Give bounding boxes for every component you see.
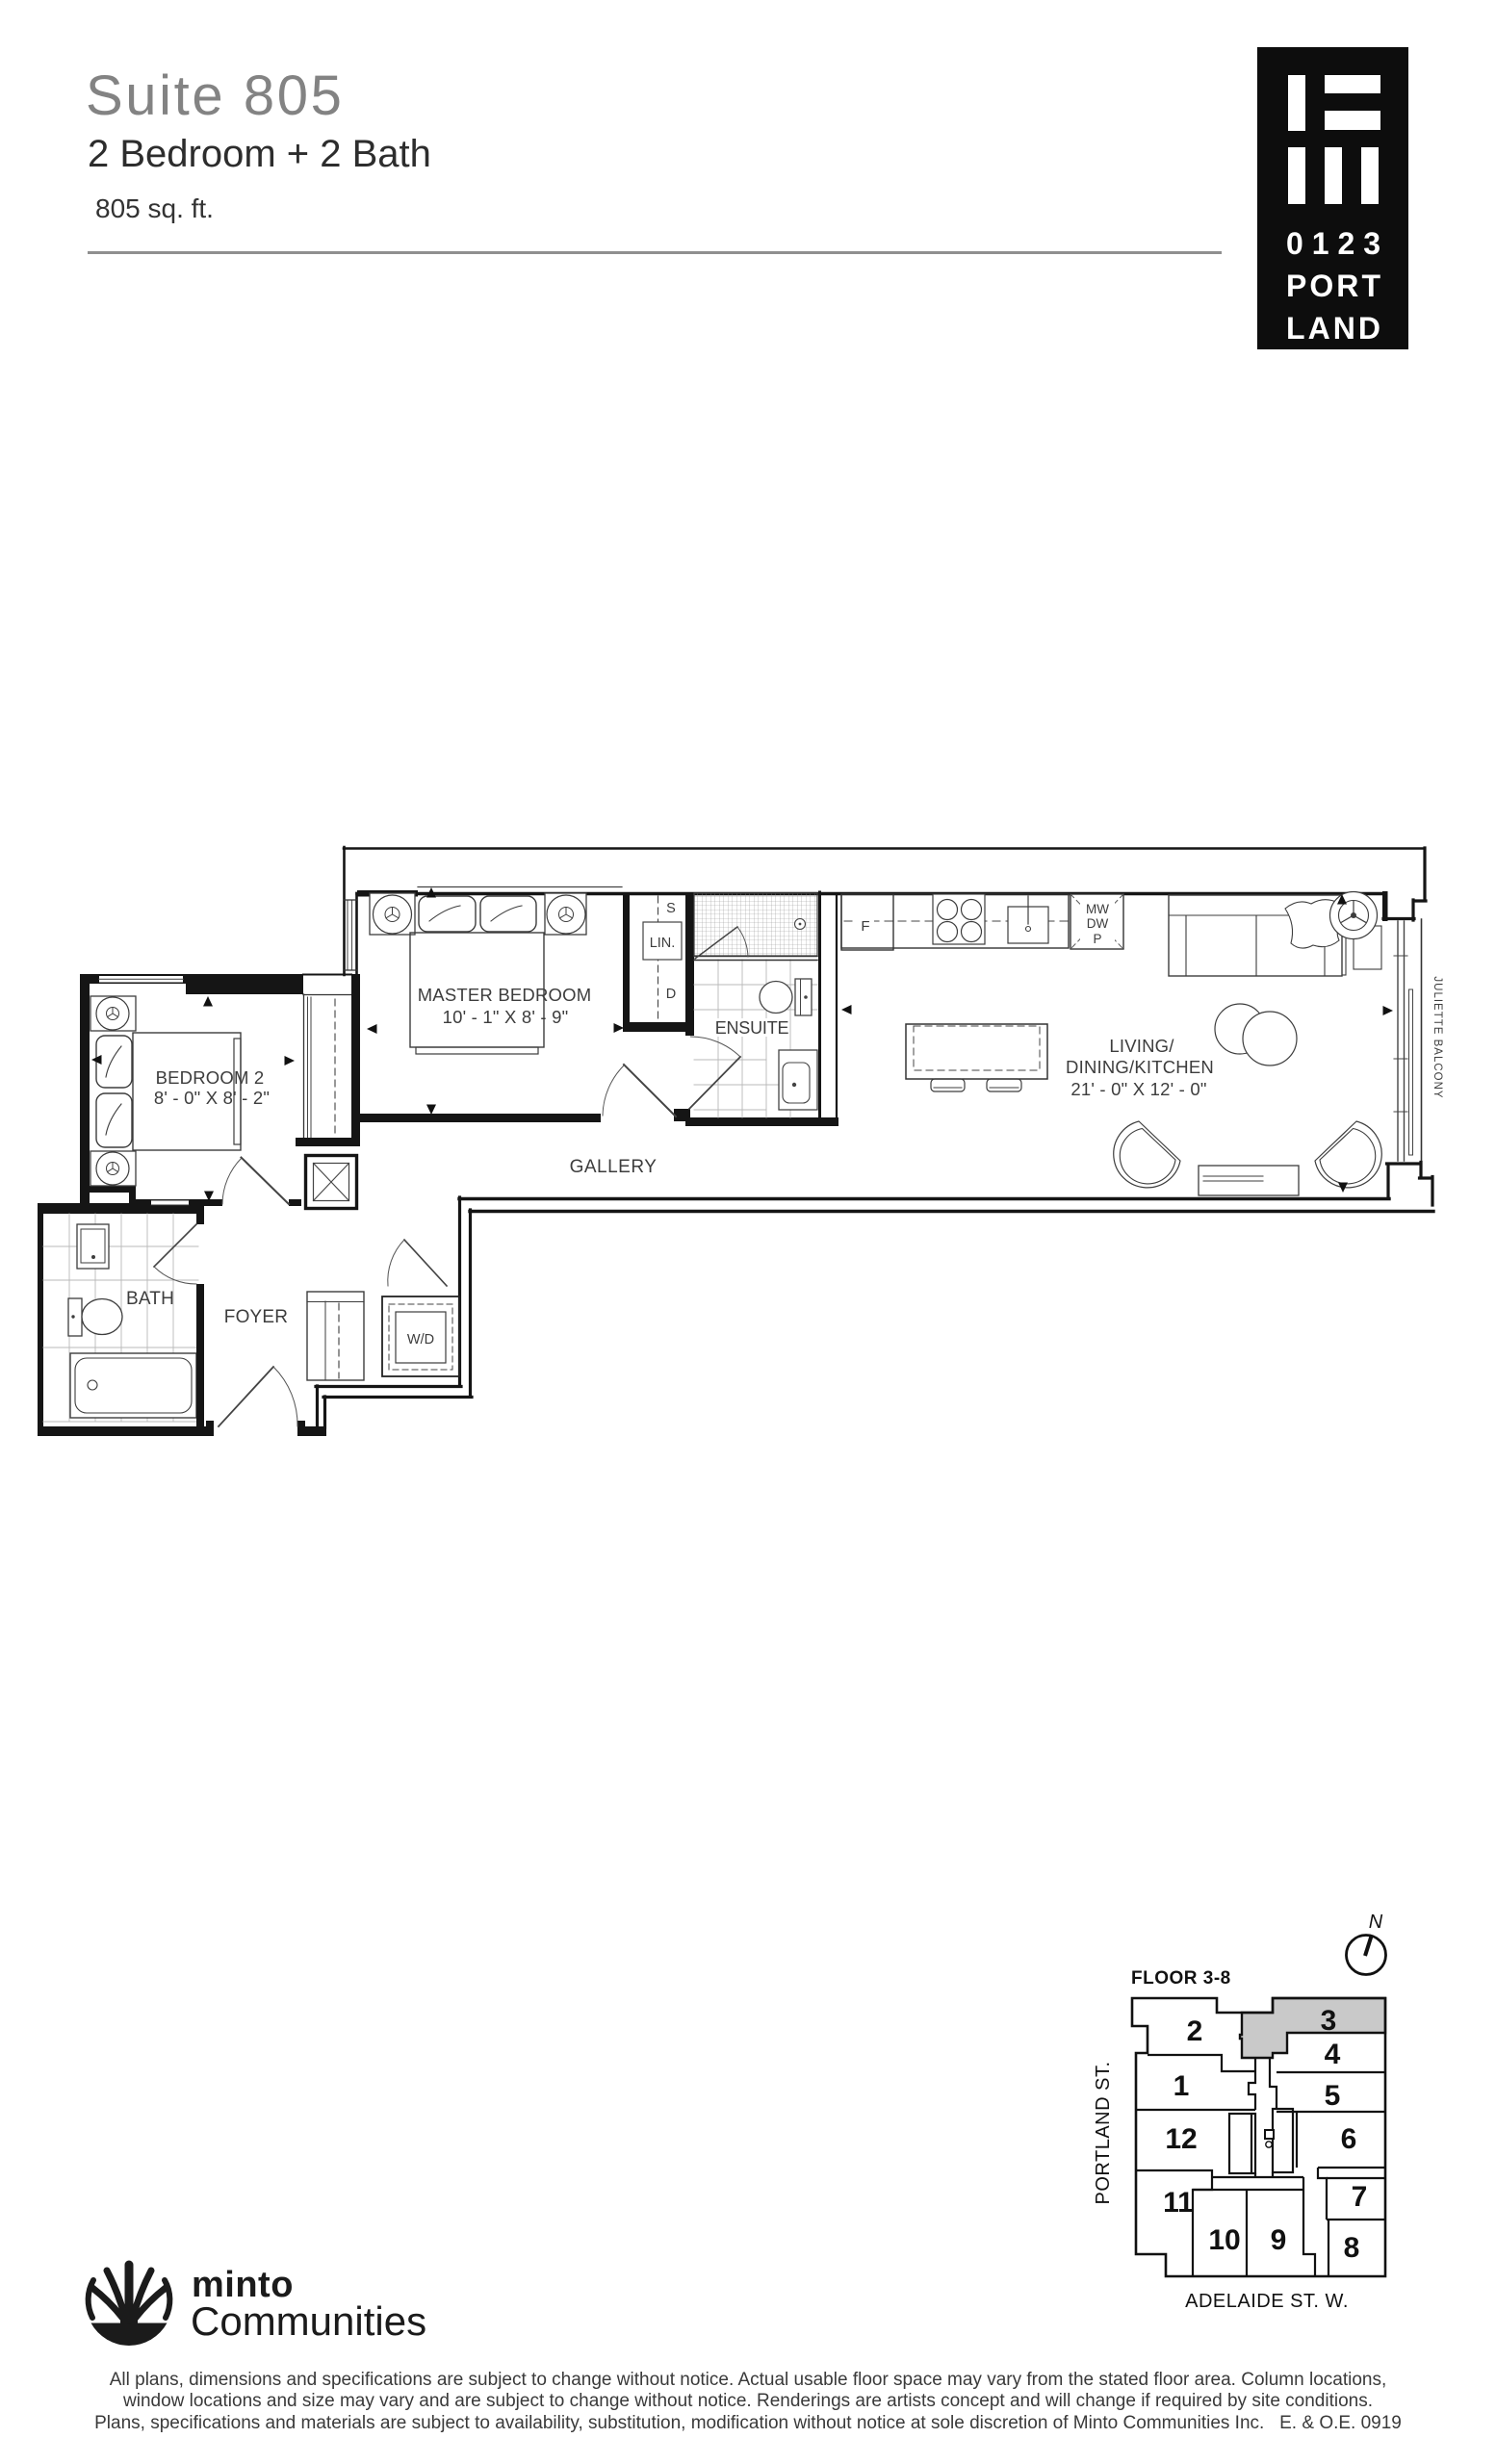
svg-text:LIN.: LIN.	[650, 936, 676, 951]
svg-text:10: 10	[1208, 2224, 1240, 2256]
svg-text:3: 3	[1321, 2005, 1337, 2037]
svg-text:Communities: Communities	[191, 2298, 426, 2344]
svg-text:9: 9	[1271, 2224, 1287, 2256]
svg-text:GALLERY: GALLERY	[570, 1157, 658, 1177]
svg-text:8: 8	[1344, 2232, 1360, 2264]
svg-text:12: 12	[1165, 2123, 1197, 2155]
svg-text:FOYER: FOYER	[224, 1307, 288, 1327]
svg-text:DINING/KITCHEN: DINING/KITCHEN	[1066, 1057, 1214, 1077]
svg-text:2: 2	[1187, 2015, 1203, 2047]
svg-text:DW: DW	[1087, 916, 1109, 931]
svg-text:6: 6	[1341, 2123, 1357, 2155]
svg-text:P: P	[1093, 932, 1101, 946]
svg-text:ADELAIDE ST. W.: ADELAIDE ST. W.	[1185, 2291, 1349, 2312]
svg-text:8' - 0" X 8' - 2": 8' - 0" X 8' - 2"	[154, 1088, 270, 1108]
svg-text:W/D: W/D	[407, 1332, 434, 1347]
svg-text:PORTLAND ST.: PORTLAND ST.	[1093, 2062, 1114, 2205]
svg-text:F: F	[861, 918, 869, 935]
svg-text:11: 11	[1163, 2187, 1194, 2219]
svg-text:BEDROOM 2: BEDROOM 2	[156, 1067, 265, 1088]
svg-text:S: S	[666, 901, 676, 916]
svg-text:1: 1	[1174, 2070, 1190, 2102]
svg-text:MW: MW	[1086, 902, 1109, 916]
svg-text:LIVING/: LIVING/	[1109, 1036, 1174, 1056]
svg-text:10' - 1" X 8' - 9": 10' - 1" X 8' - 9"	[443, 1007, 569, 1027]
svg-text:5: 5	[1325, 2080, 1341, 2112]
svg-text:FLOOR 3-8: FLOOR 3-8	[1131, 1968, 1231, 1989]
svg-text:D: D	[666, 987, 676, 1002]
svg-text:4: 4	[1325, 2039, 1341, 2070]
svg-text:21' - 0" X 12' - 0": 21' - 0" X 12' - 0"	[1070, 1079, 1206, 1099]
svg-text:ENSUITE: ENSUITE	[715, 1018, 789, 1038]
svg-text:BATH: BATH	[126, 1289, 174, 1309]
svg-text:7: 7	[1352, 2181, 1368, 2213]
svg-text:N: N	[1369, 1912, 1383, 1933]
svg-text:MASTER BEDROOM: MASTER BEDROOM	[418, 985, 592, 1005]
svg-text:JULIETTE BALCONY: JULIETTE BALCONY	[1432, 976, 1443, 1098]
